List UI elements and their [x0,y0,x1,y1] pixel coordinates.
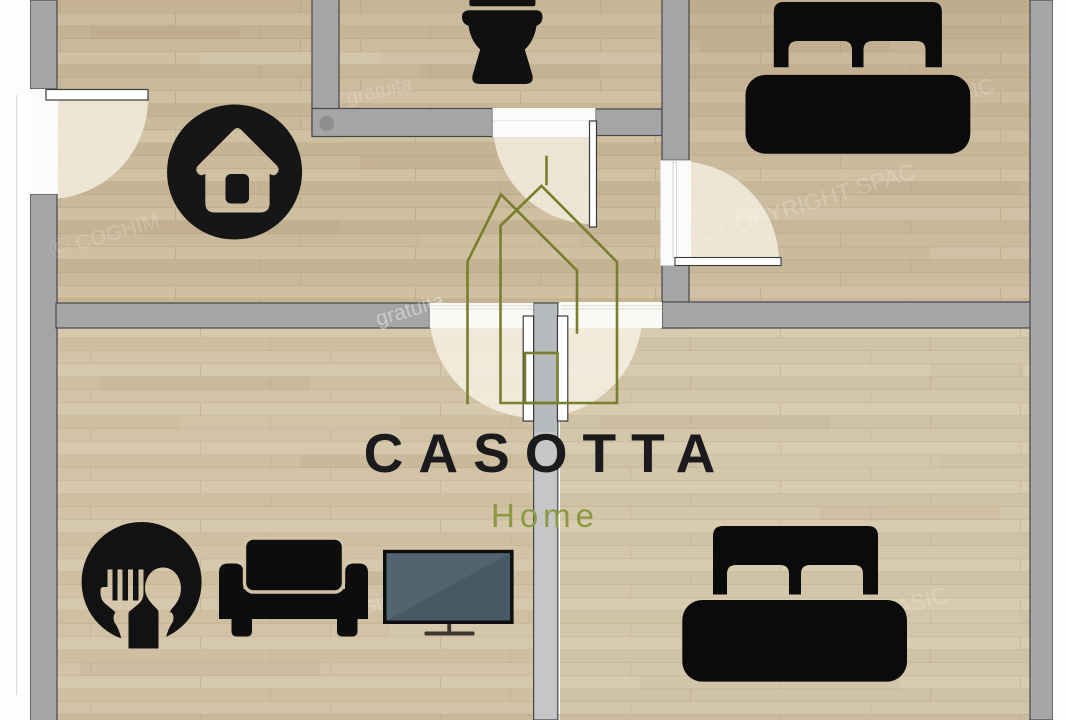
svg-text:Home: Home [491,497,599,534]
svg-text:CASOTTA: CASOTTA [364,422,731,484]
